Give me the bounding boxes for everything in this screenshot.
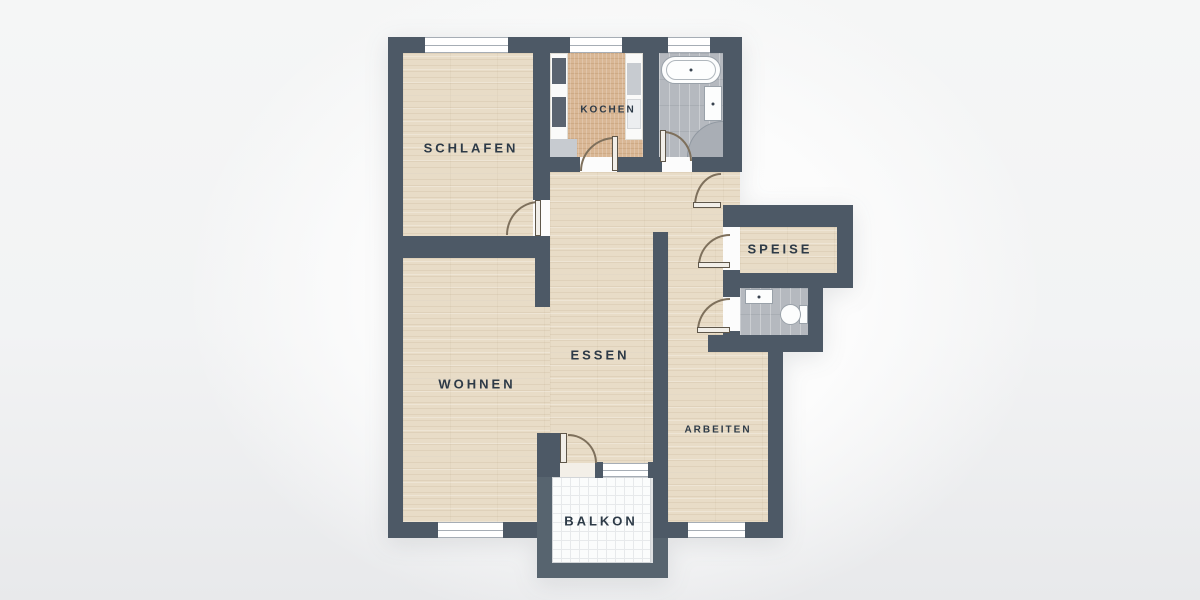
room-label-kochen: KOCHEN [580, 105, 635, 116]
wall-schlafen-divider [533, 37, 550, 200]
door-leaf-entrance [693, 202, 721, 208]
floor-plan: SCHLAFEN KOCHEN SPEISE WOHNEN ESSEN ARBE… [0, 0, 1200, 600]
window-kochen [570, 37, 622, 53]
door-leaf-schlafen [535, 200, 541, 236]
washbasin-icon [704, 86, 722, 121]
wall-right-top [723, 37, 742, 170]
balkon-parapet-right [653, 538, 668, 578]
wall-schlafen-bottom [403, 236, 550, 258]
door-leaf-speise [698, 262, 730, 268]
door-leaf-bad [660, 130, 666, 162]
window-wohnen [438, 522, 503, 538]
wall-balkon-pier-right [648, 462, 657, 478]
window-arbeiten [688, 522, 745, 538]
window-balkon [603, 463, 648, 477]
wall-speise-wc-pier [723, 270, 740, 297]
wc-washbasin-icon [745, 289, 773, 304]
wall-wc-door-pier [723, 331, 740, 352]
wall-balkon-pier-left [595, 462, 603, 478]
wall-arbeiten-right [768, 352, 783, 538]
room-label-essen: ESSEN [570, 348, 629, 363]
window-bad [668, 37, 710, 53]
wall-speise-top [723, 205, 853, 227]
wall-hall-top [550, 157, 742, 172]
balkon-parapet-bottom [537, 563, 668, 578]
wall-wohnen-essen-divider [535, 258, 550, 307]
wall-speise-bottom [723, 273, 853, 288]
bathtub-icon [661, 56, 721, 84]
entry-recess-floor [723, 172, 740, 205]
kitchen-appliance-icon [552, 58, 566, 84]
door-leaf-kochen [612, 136, 618, 171]
room-label-schlafen: SCHLAFEN [424, 141, 519, 156]
toilet-icon [780, 304, 801, 325]
kitchen-stove-icon [550, 139, 577, 157]
room-label-wohnen: WOHNEN [438, 377, 515, 392]
room-arbeiten-floor [668, 352, 768, 522]
door-opening-balkon [560, 463, 595, 477]
kitchen-sink-icon [627, 63, 641, 95]
kitchen-appliance-icon [552, 97, 566, 127]
door-leaf-balkon [560, 433, 567, 463]
room-label-arbeiten: ARBEITEN [684, 425, 751, 436]
wall-kochen-bad-divider [643, 37, 659, 157]
room-label-speise: SPEISE [748, 242, 813, 257]
room-label-balkon: BALKON [564, 514, 638, 529]
wall-balkon-door-stub [537, 433, 560, 477]
floor-plan-page: SCHLAFEN KOCHEN SPEISE WOHNEN ESSEN ARBE… [0, 0, 1200, 600]
wall-left [388, 37, 403, 538]
window-schlafen [425, 37, 508, 53]
wall-essen-arbeiten-divider [653, 232, 668, 538]
bathtub-basin [666, 60, 716, 80]
door-leaf-wc [697, 327, 730, 333]
